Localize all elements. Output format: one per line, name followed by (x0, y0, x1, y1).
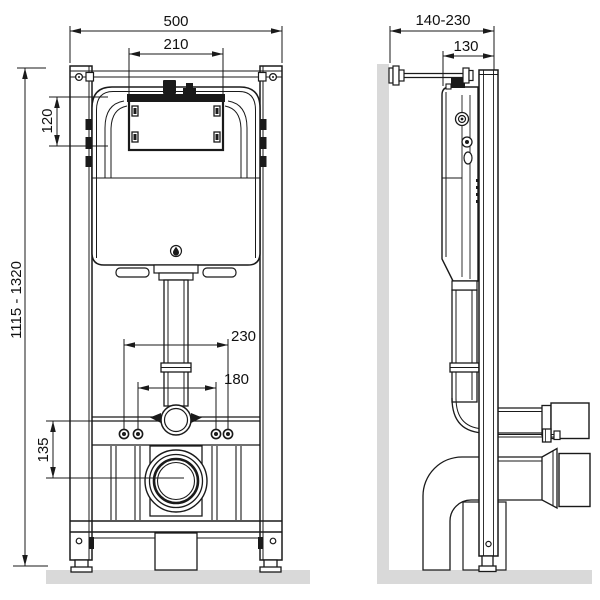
top-knob-right (186, 83, 193, 88)
dim-outlet-offset: 135 (35, 437, 52, 462)
top-knob-left (163, 80, 176, 94)
flush-pipe (161, 280, 191, 406)
technical-drawing-page: 500 210 120 1115 - 1320 230 (0, 0, 600, 600)
dim-bolt-spacing-outer: 230 (231, 328, 256, 345)
dim-plate-width: 210 (163, 36, 188, 53)
dim-depth-range: 140-230 (415, 12, 470, 29)
dim-bolt-spacing-inner: 180 (224, 371, 249, 388)
dim-frame-height-range: 1115 - 1320 (8, 261, 25, 339)
cistern-side (442, 77, 481, 290)
side-view (377, 64, 592, 584)
fixing-stud (498, 429, 560, 442)
dim-plate-height: 120 (39, 108, 56, 133)
technical-drawing: 500 210 120 1115 - 1320 230 (0, 0, 600, 600)
flush-pipe-connector (150, 405, 202, 435)
center-pedestal (155, 533, 197, 570)
drain-outlet (145, 450, 207, 512)
flush-plate-opening (127, 94, 225, 150)
side-foot (482, 556, 493, 567)
cistern-body (86, 80, 267, 280)
waste-outlet-connector (498, 449, 590, 509)
dim-cistern-depth: 130 (453, 38, 478, 55)
front-view (46, 66, 310, 584)
frame-rail-side (479, 70, 498, 572)
wall (377, 64, 389, 570)
dim-frame-width: 500 (163, 13, 188, 30)
